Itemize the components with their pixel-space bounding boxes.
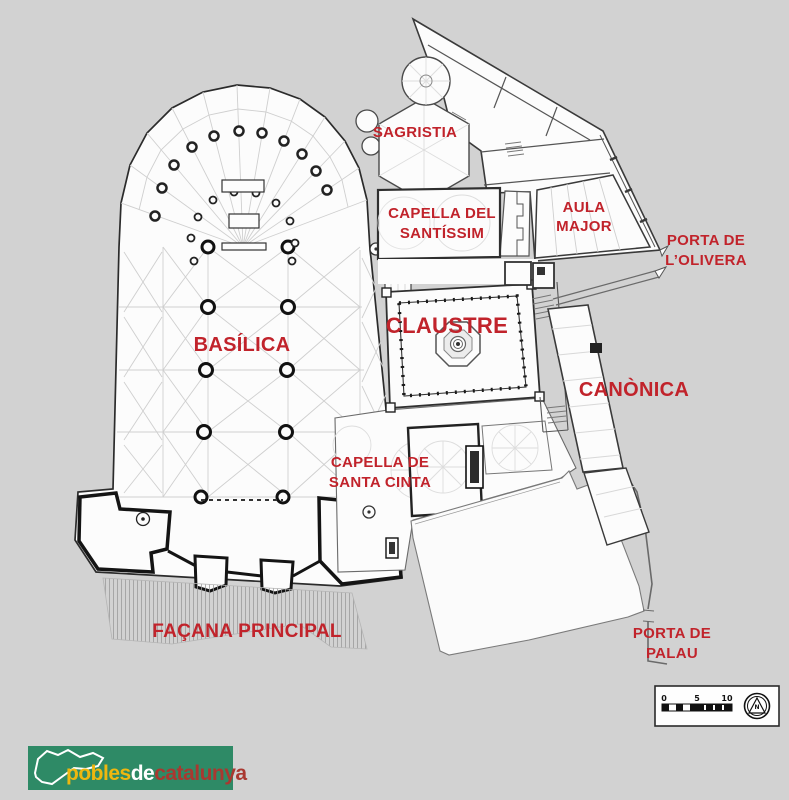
label-canonica: CANÒNICA — [579, 377, 689, 401]
label-porta-olivera-2: L’OLIVERA — [665, 252, 747, 269]
ne-room-b — [533, 263, 554, 288]
spiral-stair-left-dot — [141, 517, 145, 521]
south-stair-core — [389, 542, 395, 554]
scale-tick-0: 0 — [661, 694, 667, 703]
floor-plan-page: 0 5 10 N poblesdecatalunya SAGRISTIA CAP… — [0, 0, 789, 800]
logo-wordmark: poblesdecatalunya — [66, 762, 247, 785]
scale-bar — [662, 704, 732, 711]
label-capella-santissim-1: CAPELLA DEL — [388, 205, 496, 222]
label-facana-principal: FAÇANA PRINCIPAL — [152, 621, 342, 642]
scale-tick-10: 10 — [721, 694, 733, 703]
buttressed-passage — [500, 191, 530, 256]
scale-tick-5: 5 — [694, 694, 700, 703]
santa-cinta-altar-detail — [470, 451, 479, 483]
rotunda-ribs — [402, 57, 450, 105]
label-capella-cinta-1: CAPELLA DE — [331, 454, 429, 471]
label-porta-palau-1: PORTA DE — [633, 625, 711, 642]
north-compass-icon: N — [745, 694, 770, 719]
label-basilica: BASÍLICA — [194, 333, 291, 356]
label-capella-cinta-2: SANTA CINTA — [329, 474, 431, 491]
label-sagristia: SAGRISTIA — [373, 124, 457, 141]
logo-part-pobles: pobles — [66, 762, 131, 785]
logo-part-catalunya: catalunya — [154, 762, 247, 785]
floor-plan-svg: 0 5 10 N poblesdecatalunya SAGRISTIA CAP… — [0, 0, 789, 800]
label-claustre: CLAUSTRE — [386, 313, 508, 338]
label-porta-palau-2: PALAU — [646, 645, 698, 662]
logo-part-de: de — [131, 762, 155, 785]
watermark-logo[interactable]: poblesdecatalunya — [28, 746, 247, 790]
scale-box: 0 5 10 N — [655, 686, 779, 726]
label-aula-major-2: MAJOR — [556, 218, 612, 235]
ne-room-detail — [537, 267, 545, 275]
label-aula-major-1: AULA — [563, 199, 606, 216]
canonica-door — [590, 343, 602, 353]
spiral-stair-south-dot — [367, 510, 370, 513]
ne-room-a — [505, 262, 531, 285]
label-porta-olivera-1: PORTA DE — [667, 232, 745, 249]
label-capella-santissim-2: SANTÍSSIM — [400, 225, 484, 242]
compass-letter: N — [754, 704, 759, 711]
